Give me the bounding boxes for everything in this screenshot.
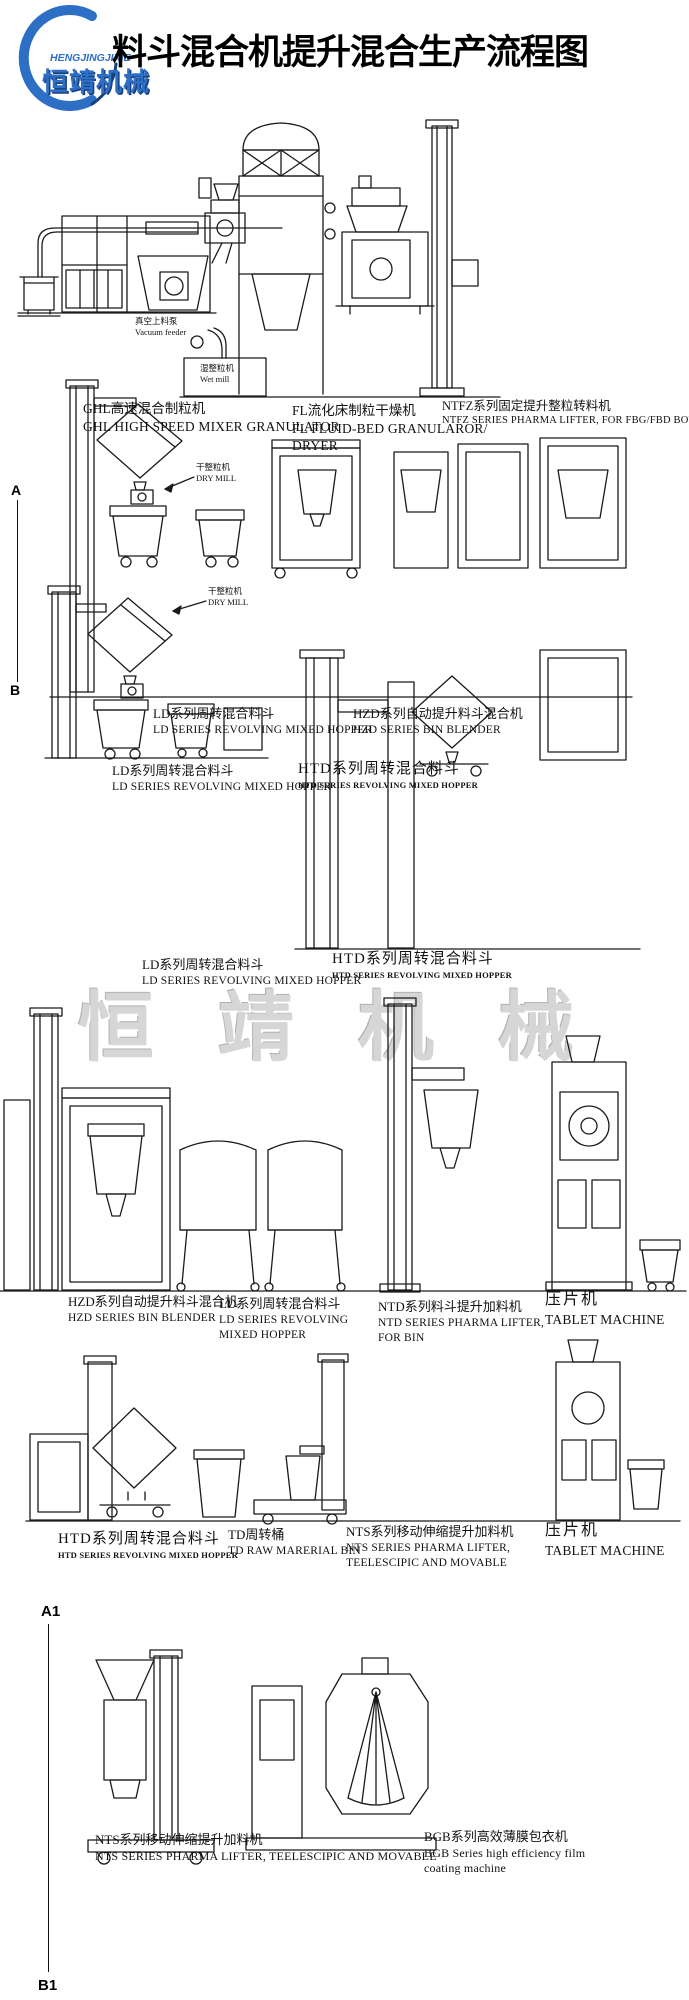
caption-ld-row2: LD系列周转混合料斗 LD SERIES REVOLVING MIXED HOP… (153, 706, 372, 738)
caption-hzd-row2-en: HZD SERIES BIN BLENDER (353, 723, 523, 738)
caption-ld-row4: LD系列周转混合料斗 LD SERIES REVOLVING MIXED HOP… (142, 957, 361, 989)
caption-htd-row3-zh: HTD系列周转混合料斗 (298, 760, 478, 780)
caption-htd-row4: HTD系列周转混合料斗 HTD SERIES REVOLVING MIXED H… (332, 950, 512, 981)
caption-ntd-row5-en2: FOR BIN (378, 1331, 544, 1346)
caption-ld-row2-en: LD SERIES REVOLVING MIXED HOPPER (153, 723, 372, 738)
marker-b1: B1 (38, 1977, 57, 1994)
caption-ld-row5-en2: MIXED HOPPER (219, 1328, 348, 1343)
caption-nts-row6-zh: NTS系列移动伸缩提升加料机 (346, 1524, 514, 1541)
caption-hzd-row2: HZD系列自动提升料斗混合机 HZD SERIES BIN BLENDER (353, 706, 523, 738)
caption-ld-row5-en1: LD SERIES REVOLVING (219, 1313, 348, 1328)
marker-a1: A1 (41, 1603, 60, 1620)
tablet-machine-row4-drawing (0, 1036, 686, 1291)
caption-ntd-row5-zh: NTD系列料斗提升加料机 (378, 1299, 544, 1316)
caption-tablet-row6-zh: 压片机 (545, 1521, 665, 1542)
caption-hzd-row2-zh: HZD系列自动提升料斗混合机 (353, 706, 523, 723)
label-dry-mill-a: 干整粒机 DRY MILL (196, 462, 236, 485)
caption-ld-row4-zh: LD系列周转混合料斗 (142, 957, 361, 974)
caption-td-row6-en: TD RAW MARERIAL BIN (228, 1544, 361, 1559)
caption-ntd-row5: NTD系列料斗提升加料机 NTD SERIES PHARMA LIFTER, F… (378, 1299, 544, 1346)
caption-htd-row3-en: HTD SERIES REVOLVING MIXED HOPPER (298, 780, 478, 791)
marker-b: B (10, 682, 20, 698)
label-dry-mill-a-zh: 干整粒机 (196, 462, 236, 473)
caption-hzd-row5: HZD系列自动提升料斗混合机 HZD SERIES BIN BLENDER (68, 1294, 238, 1326)
label-vacuum-feeder-en: Vacuum feeder (135, 327, 186, 338)
flow-diagram-page: 恒靖机械 (0, 0, 689, 2000)
caption-bgb-row7-en1: BGB Series high efficiency film (424, 1846, 585, 1862)
label-dry-mill-a-en: DRY MILL (196, 473, 236, 484)
caption-hzd-row5-zh: HZD系列自动提升料斗混合机 (68, 1294, 238, 1311)
caption-nts-row7: NTS系列移动伸缩提升加料机 NTS SERIES PHARMA LIFTER,… (95, 1832, 437, 1864)
caption-tablet-row6: 压片机 TABLET MACHINE (545, 1521, 665, 1559)
label-wet-mill: 湿整粒机 Wet mill (200, 363, 234, 386)
caption-htd-row6-en: HTD SERIES REVOLVING MIXED HOPPER (58, 1550, 238, 1561)
page-title: 料斗混合机提升混合生产流程图 (112, 24, 588, 75)
label-vacuum-feeder-zh: 真空上料泵 (135, 316, 186, 327)
caption-tablet-row5-zh: 压片机 (545, 1290, 665, 1311)
caption-htd-row4-en: HTD SERIES REVOLVING MIXED HOPPER (332, 970, 512, 981)
caption-tablet-row5-en: TABLET MACHINE (545, 1311, 665, 1329)
htd-hopper-b-drawing (295, 650, 640, 949)
hzd-blender-row4-drawing (4, 1008, 170, 1290)
caption-nts-row7-en: NTS SERIES PHARMA LIFTER, TEELESCIPIC AN… (95, 1849, 437, 1865)
caption-htd-row6: HTD系列周转混合料斗 HTD SERIES REVOLVING MIXED H… (58, 1530, 238, 1561)
caption-td-row6-zh: TD周转桶 (228, 1527, 361, 1544)
caption-ntfz-en: NTFZ SERIES PHARMA LIFTER, FOR FBG/FBD B… (442, 414, 689, 428)
caption-ld-row5: LD系列周转混合料斗 LD SERIES REVOLVING MIXED HOP… (219, 1296, 348, 1343)
caption-td-row6: TD周转桶 TD RAW MARERIAL BIN (228, 1527, 361, 1559)
caption-ld-row4-en: LD SERIES REVOLVING MIXED HOPPER (142, 974, 361, 989)
marker-a: A (11, 482, 21, 498)
row5-machines-drawing (26, 1340, 680, 1524)
fl-machine-drawing (239, 123, 335, 394)
caption-ntfz: NTFZ系列固定提升整粒转料机 NTFZ SERIES PHARMA LIFTE… (442, 398, 689, 428)
label-dry-mill-b-zh: 干整粒机 (208, 586, 248, 597)
ld-hoppers-row4-drawing (177, 1141, 345, 1291)
marker-line-a1b1 (48, 1624, 49, 1972)
marker-line-ab (17, 500, 18, 682)
caption-ld-row5-zh: LD系列周转混合料斗 (219, 1296, 348, 1313)
label-wet-mill-zh: 湿整粒机 (200, 363, 234, 374)
ghl-machine-drawing (18, 178, 282, 396)
logo: HENGJINGJIXIE 恒靖机械 (16, 4, 126, 112)
caption-tablet-row5: 压片机 TABLET MACHINE (545, 1290, 665, 1328)
label-wet-mill-en: Wet mill (200, 374, 234, 385)
machinery-line-art (0, 0, 689, 2000)
caption-nts-row6-en2: TEELESCIPIC AND MOVABLE (346, 1556, 514, 1571)
caption-bgb-row7-en2: coating machine (424, 1861, 585, 1877)
caption-nts-row7-zh: NTS系列移动伸缩提升加料机 (95, 1832, 437, 1849)
caption-htd-row4-zh: HTD系列周转混合料斗 (332, 950, 512, 970)
caption-ntfz-zh: NTFZ系列固定提升整粒转料机 (442, 398, 689, 414)
caption-fl-en2: DRYER (292, 437, 488, 455)
label-vacuum-feeder: 真空上料泵 Vacuum feeder (135, 316, 186, 339)
caption-bgb-row7-zh: BGB系列高效薄膜包衣机 (424, 1829, 585, 1846)
caption-htd-row6-zh: HTD系列周转混合料斗 (58, 1530, 238, 1550)
caption-tablet-row6-en: TABLET MACHINE (545, 1542, 665, 1560)
caption-ntd-row5-en1: NTD SERIES PHARMA LIFTER, (378, 1316, 544, 1331)
label-dry-mill-b: 干整粒机 DRY MILL (208, 586, 248, 609)
ntd-lifter-row4-drawing (380, 998, 478, 1292)
caption-hzd-row5-en: HZD SERIES BIN BLENDER (68, 1311, 238, 1326)
label-dry-mill-b-en: DRY MILL (208, 597, 248, 608)
caption-ld-row2-zh: LD系列周转混合料斗 (153, 706, 372, 723)
caption-bgb-row7: BGB系列高效薄膜包衣机 BGB Series high efficiency … (424, 1829, 585, 1877)
caption-nts-row6-en1: NTS SERIES PHARMA LIFTER, (346, 1541, 514, 1556)
caption-nts-row6: NTS系列移动伸缩提升加料机 NTS SERIES PHARMA LIFTER,… (346, 1524, 514, 1571)
caption-htd-row3: HTD系列周转混合料斗 HTD SERIES REVOLVING MIXED H… (298, 760, 478, 791)
bgb-coating-machine-drawing (246, 1658, 436, 1850)
